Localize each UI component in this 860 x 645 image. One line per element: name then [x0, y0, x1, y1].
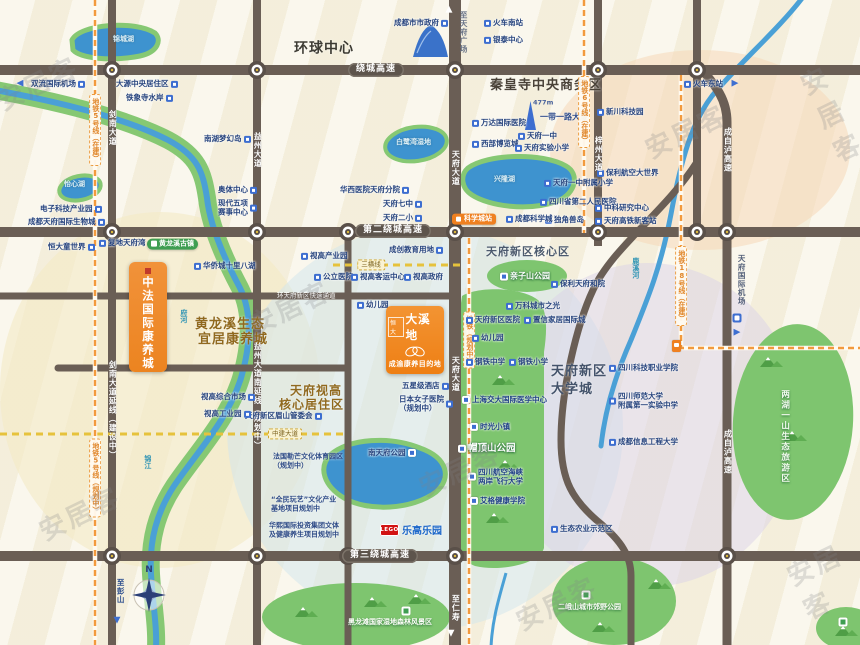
poi-building-icon [595, 205, 602, 212]
height-annotation: 477m [533, 99, 553, 106]
poi-building-icon [248, 394, 255, 401]
poi-building-icon [250, 187, 257, 194]
map-poi: 成都市市政府 [394, 19, 448, 27]
map-poi: 中科研究中心 [595, 204, 649, 212]
map-poi: 置信家居国际城 [524, 316, 586, 324]
poi-text: 现代五项赛事中心 [218, 199, 248, 218]
water-label: 锦城湖 [113, 36, 134, 44]
direction-arrow-icon: ▶ [734, 329, 741, 338]
poi-building-icon [194, 263, 201, 270]
legoland-name: 乐高乐园 [402, 522, 442, 537]
road-name-label: 环天府新区快速通道 [277, 292, 336, 299]
note-text: “全民玩艺”文化产业基地项目规划中 [271, 495, 336, 513]
direction-arrow-icon: ◀ [17, 80, 24, 89]
metro-line-label: 地铁6号线（在建） [578, 76, 590, 148]
poi-building-icon [408, 449, 416, 457]
metro-line-label: 地铁5号线（规划中） [89, 439, 101, 518]
map-poi: 保利天府和院 [551, 280, 605, 288]
park-label: 二峨山城市郊野公园 [558, 604, 621, 612]
poi-building-icon [509, 359, 516, 366]
poi-building-icon [472, 335, 479, 342]
poi-building-icon [171, 81, 178, 88]
map-poi: 钢铁中学 [466, 358, 505, 366]
seal-icon [145, 268, 151, 274]
note-text: 华熙国际投资集团文体及健康养生项目规划中 [269, 521, 339, 539]
map-poi: 钢铁小学 [509, 358, 548, 366]
poi-building-icon [314, 274, 321, 281]
river-label: 鹿溪河 [631, 258, 639, 279]
road-name-label: 成自泸高速 [723, 128, 732, 173]
poi-building-icon [472, 141, 479, 148]
area-title: 大学城 [551, 383, 593, 397]
poi-building-icon [506, 303, 513, 310]
watermark: 安居客 [780, 531, 860, 627]
map-poi: 华西医院天府分院 [340, 186, 409, 194]
area-title: 核心居住区 [279, 398, 344, 411]
map-poi: 五星级酒店 [402, 382, 449, 390]
map-poi: 天府新区眉山管委会 [245, 412, 322, 420]
map-poi: 四川航空海峡两岸飞行大学 [468, 468, 523, 487]
metro-station-badge-icon [672, 340, 681, 352]
map-poi: 南天府公园 [368, 449, 416, 457]
poi-building-icon [544, 180, 551, 187]
map-poi: 成创教育用地 [389, 246, 443, 254]
planned-road-label: 中建大道 [268, 428, 302, 439]
road-name-label: 益州大道 [253, 132, 262, 168]
project-marker-hengda-daxidi: 恒大 大溪地 成渝康养目的地 [386, 306, 444, 374]
poi-building-icon [315, 413, 322, 420]
lego-logo-icon: LEGO [380, 524, 399, 536]
area-title: 天府新区 [551, 365, 607, 379]
poi-building-icon [357, 302, 364, 309]
poi-building-icon [98, 219, 105, 226]
map-poi: 新川科技园 [597, 108, 644, 116]
road-name-label: 天府大道 [451, 356, 460, 392]
area-title: 宜居康养城 [198, 333, 268, 347]
map-poi: 四川师范大学附属第一实验中学 [609, 392, 678, 411]
direction-label: 至天府广场 [459, 11, 467, 54]
river-label: 锦江 [143, 455, 151, 469]
map-poi: 幼儿园 [357, 301, 389, 309]
map-poi: 天府实验小学 [515, 144, 569, 152]
poi-building-icon [468, 473, 476, 481]
project-tagline: 成渝康养目的地 [389, 359, 442, 369]
water-label: 白鹭湾湿地 [396, 139, 431, 147]
water-label: 兴隆湖 [494, 176, 515, 184]
map-poi: 铁象寺水岸 [126, 94, 173, 102]
poi-building-icon [250, 205, 257, 212]
map-poi: 视高政府 [404, 273, 443, 281]
map-poi: 天府高铁新客站 [595, 217, 657, 225]
poi-building-icon [540, 199, 547, 206]
map-poi: 视高客运中心 [351, 273, 405, 281]
poi-building-icon [244, 136, 251, 143]
poi-building-icon [470, 497, 478, 505]
metro-icon [733, 314, 742, 323]
map-poi: 火车东站 [684, 80, 723, 88]
project-name: 中法国际康养城 [140, 276, 156, 371]
park-icon [839, 618, 848, 627]
water-label: 怡心湖 [64, 181, 85, 189]
metro-line-label: 地铁18号线（在建） [675, 246, 687, 326]
park-icon [582, 591, 591, 600]
poi-building-icon [684, 81, 691, 88]
poi-building-icon [484, 37, 491, 44]
poi-building-icon [500, 273, 508, 281]
poi-building-icon [551, 526, 558, 533]
map-poi: 天府一中 [518, 132, 557, 140]
project-brand: 恒大 [388, 317, 404, 337]
map-poi: 电子科技产业园 [40, 205, 102, 213]
poi-building-icon [441, 20, 448, 27]
road-name-label: 天府大道 [451, 150, 460, 186]
poi-building-icon [506, 216, 513, 223]
map-poi: 天府新区医院 [466, 316, 520, 324]
poi-building-icon [472, 120, 479, 127]
map-poi: 万达国际医院 [472, 119, 526, 127]
poi-building-icon [466, 317, 473, 324]
planning-note: “全民玩艺”文化产业基地项目规划中 [271, 495, 336, 513]
direction-arrow-icon: ▶ [732, 80, 739, 89]
map-poi: 天府七中 [383, 200, 422, 208]
road-name-label: 剑南大道 [108, 110, 117, 146]
map-canvas: 成都市市政府火车南站银泰中心◀双流国际机场大源中央居住区铁象寺水岸南湖梦幻岛火车… [0, 0, 860, 645]
map-poi: 恒大童世界 [48, 243, 95, 251]
map-poi: 四川科技职业学院 [609, 364, 678, 372]
metro-line-label: 地铁5号线（在建） [89, 94, 101, 166]
direction-arrow-icon: ▼ [448, 630, 455, 639]
knot-logo-icon [405, 345, 425, 358]
poi-building-icon [99, 240, 106, 247]
park-label: 帽顶山公园 [458, 444, 516, 454]
watermark: 安居客 [32, 477, 126, 548]
map-poi: 万科城市之光 [506, 302, 560, 310]
poi-building-icon [301, 253, 308, 260]
map-poi: 视高产业园 [301, 252, 348, 260]
poi-building-icon [415, 201, 422, 208]
poi-building-icon [402, 187, 409, 194]
map-poi: 天府二小 [383, 214, 422, 222]
poi-building-icon [466, 359, 473, 366]
legoland-label: LEGO 乐高乐园 [380, 522, 442, 537]
map-poi: 奥体中心 [218, 186, 257, 194]
map-poi: 大源中央居住区 [116, 80, 178, 88]
map-poi: 银泰中心 [484, 36, 523, 44]
map-poi: 艾格健康学院 [470, 497, 525, 505]
ancient-town-label: 黄龙溪古镇 [147, 239, 198, 250]
poi-building-icon [166, 95, 173, 102]
watermark: 安居客 [638, 95, 732, 166]
map-poi: 双流国际机场 [31, 80, 85, 88]
poi-building-icon [609, 398, 616, 405]
highway-name-label: 第二绕城高速 [355, 224, 431, 238]
map-poi: 幼儿园 [472, 334, 504, 342]
project-name: 大溪地 [406, 311, 442, 343]
map-poi: 时光小镇 [470, 423, 510, 431]
map-poi: 生态农业示范区 [551, 525, 613, 533]
direction-arrow-icon: ▼ [114, 617, 121, 626]
area-title: 环球中心 [294, 41, 354, 56]
map-poi: 保利航空大世界 [597, 169, 659, 177]
poi-building-icon [415, 215, 422, 222]
poi-building-icon [524, 317, 531, 324]
poi-building-icon [609, 365, 616, 372]
watermark: 安居客 [794, 50, 860, 169]
poi-building-icon [462, 396, 470, 404]
area-title: 天府视高 [290, 384, 342, 397]
map-poi: 视高工业园 [204, 410, 251, 418]
map-poi: 天府一中附属小学 [544, 179, 613, 187]
area-title: 黄龙溪生态 [195, 318, 265, 332]
road-name-label: 成自泸高速 [723, 430, 732, 475]
poi-text: 四川航空海峡两岸飞行大学 [478, 468, 523, 487]
poi-building-icon [404, 274, 411, 281]
poi-building-icon [442, 383, 449, 390]
map-poi: 现代五项赛事中心 [218, 199, 257, 218]
planned-road-label: 三横线 [357, 259, 385, 270]
direction-arrow-icon: ▲ [446, 6, 453, 15]
area-title: 天府新区核心区 [486, 246, 570, 258]
map-poi: 火车南站 [484, 19, 523, 27]
map-poi: 公立医院 [314, 273, 353, 281]
map-poi: 成都信息工程大学 [609, 438, 678, 446]
park-icon [402, 607, 411, 616]
poi-building-icon [484, 20, 491, 27]
road-name-label: 剑南大道延线（建设中） [108, 361, 117, 460]
poi-building-icon [518, 133, 525, 140]
park-label: 亲子山公园 [500, 273, 550, 282]
river-label: 府河 [179, 309, 187, 323]
poi-building-icon [597, 109, 604, 116]
park-label: 黑龙滩国家湿地森林风景区 [348, 619, 432, 627]
poi-building-icon [244, 411, 251, 418]
poi-building-icon [78, 81, 85, 88]
poi-building-icon [351, 274, 358, 281]
project-marker-zhongfa-kangyangcheng: 中法国际康养城 [129, 262, 167, 372]
planning-note: 华熙国际投资集团文体及健康养生项目规划中 [269, 521, 339, 539]
map-poi: 华侨城十里八湖 [194, 262, 256, 270]
poi-text: 日本女子医院（规划中） [399, 395, 444, 414]
compass-north-label: N [145, 565, 153, 575]
poi-building-icon [470, 423, 478, 431]
poi-building-icon [551, 281, 558, 288]
compass: N [127, 563, 171, 621]
highway-name-label: 第三绕城高速 [342, 549, 418, 563]
poi-building-icon [436, 247, 443, 254]
note-text: 法国勒芒文化体育园区（规划中） [273, 452, 343, 470]
map-poi: 复地天府湾 [99, 239, 146, 247]
direction-label: 至彭山 [116, 578, 124, 604]
poi-building-icon [609, 439, 616, 446]
poi-building-icon [88, 244, 95, 251]
map-poi: 南湖梦幻岛 [204, 135, 251, 143]
map-poi: 日本女子医院（规划中） [399, 395, 453, 414]
poi-building-icon [515, 145, 522, 152]
poi-building-icon [595, 218, 602, 225]
metro-station-badge: 科学城站 [452, 214, 496, 225]
road-name-label: 梓州大道 [594, 136, 603, 172]
highway-name-label: 绕城高速 [348, 63, 404, 77]
poi-building-icon [446, 401, 453, 408]
map-poi: 西部博览城 [472, 140, 519, 148]
poi-building-icon [95, 206, 102, 213]
road-name-label: 至仁寿 [451, 595, 460, 622]
direction-label: 天府国际机场 [737, 255, 745, 306]
planning-note: 法国勒芒文化体育园区（规划中） [273, 452, 343, 470]
map-poi: 成都天府国际生物城 [28, 218, 105, 226]
scenic-area-label: 两湖一山生态旅游区 [779, 390, 788, 485]
map-poi: 上海交大国际医学中心 [462, 396, 547, 404]
poi-text: 四川师范大学附属第一实验中学 [618, 392, 678, 411]
map-poi: 视高综合市场 [201, 393, 255, 401]
poi-building-icon [458, 445, 466, 453]
map-poi: 成都科学城 [506, 215, 553, 223]
